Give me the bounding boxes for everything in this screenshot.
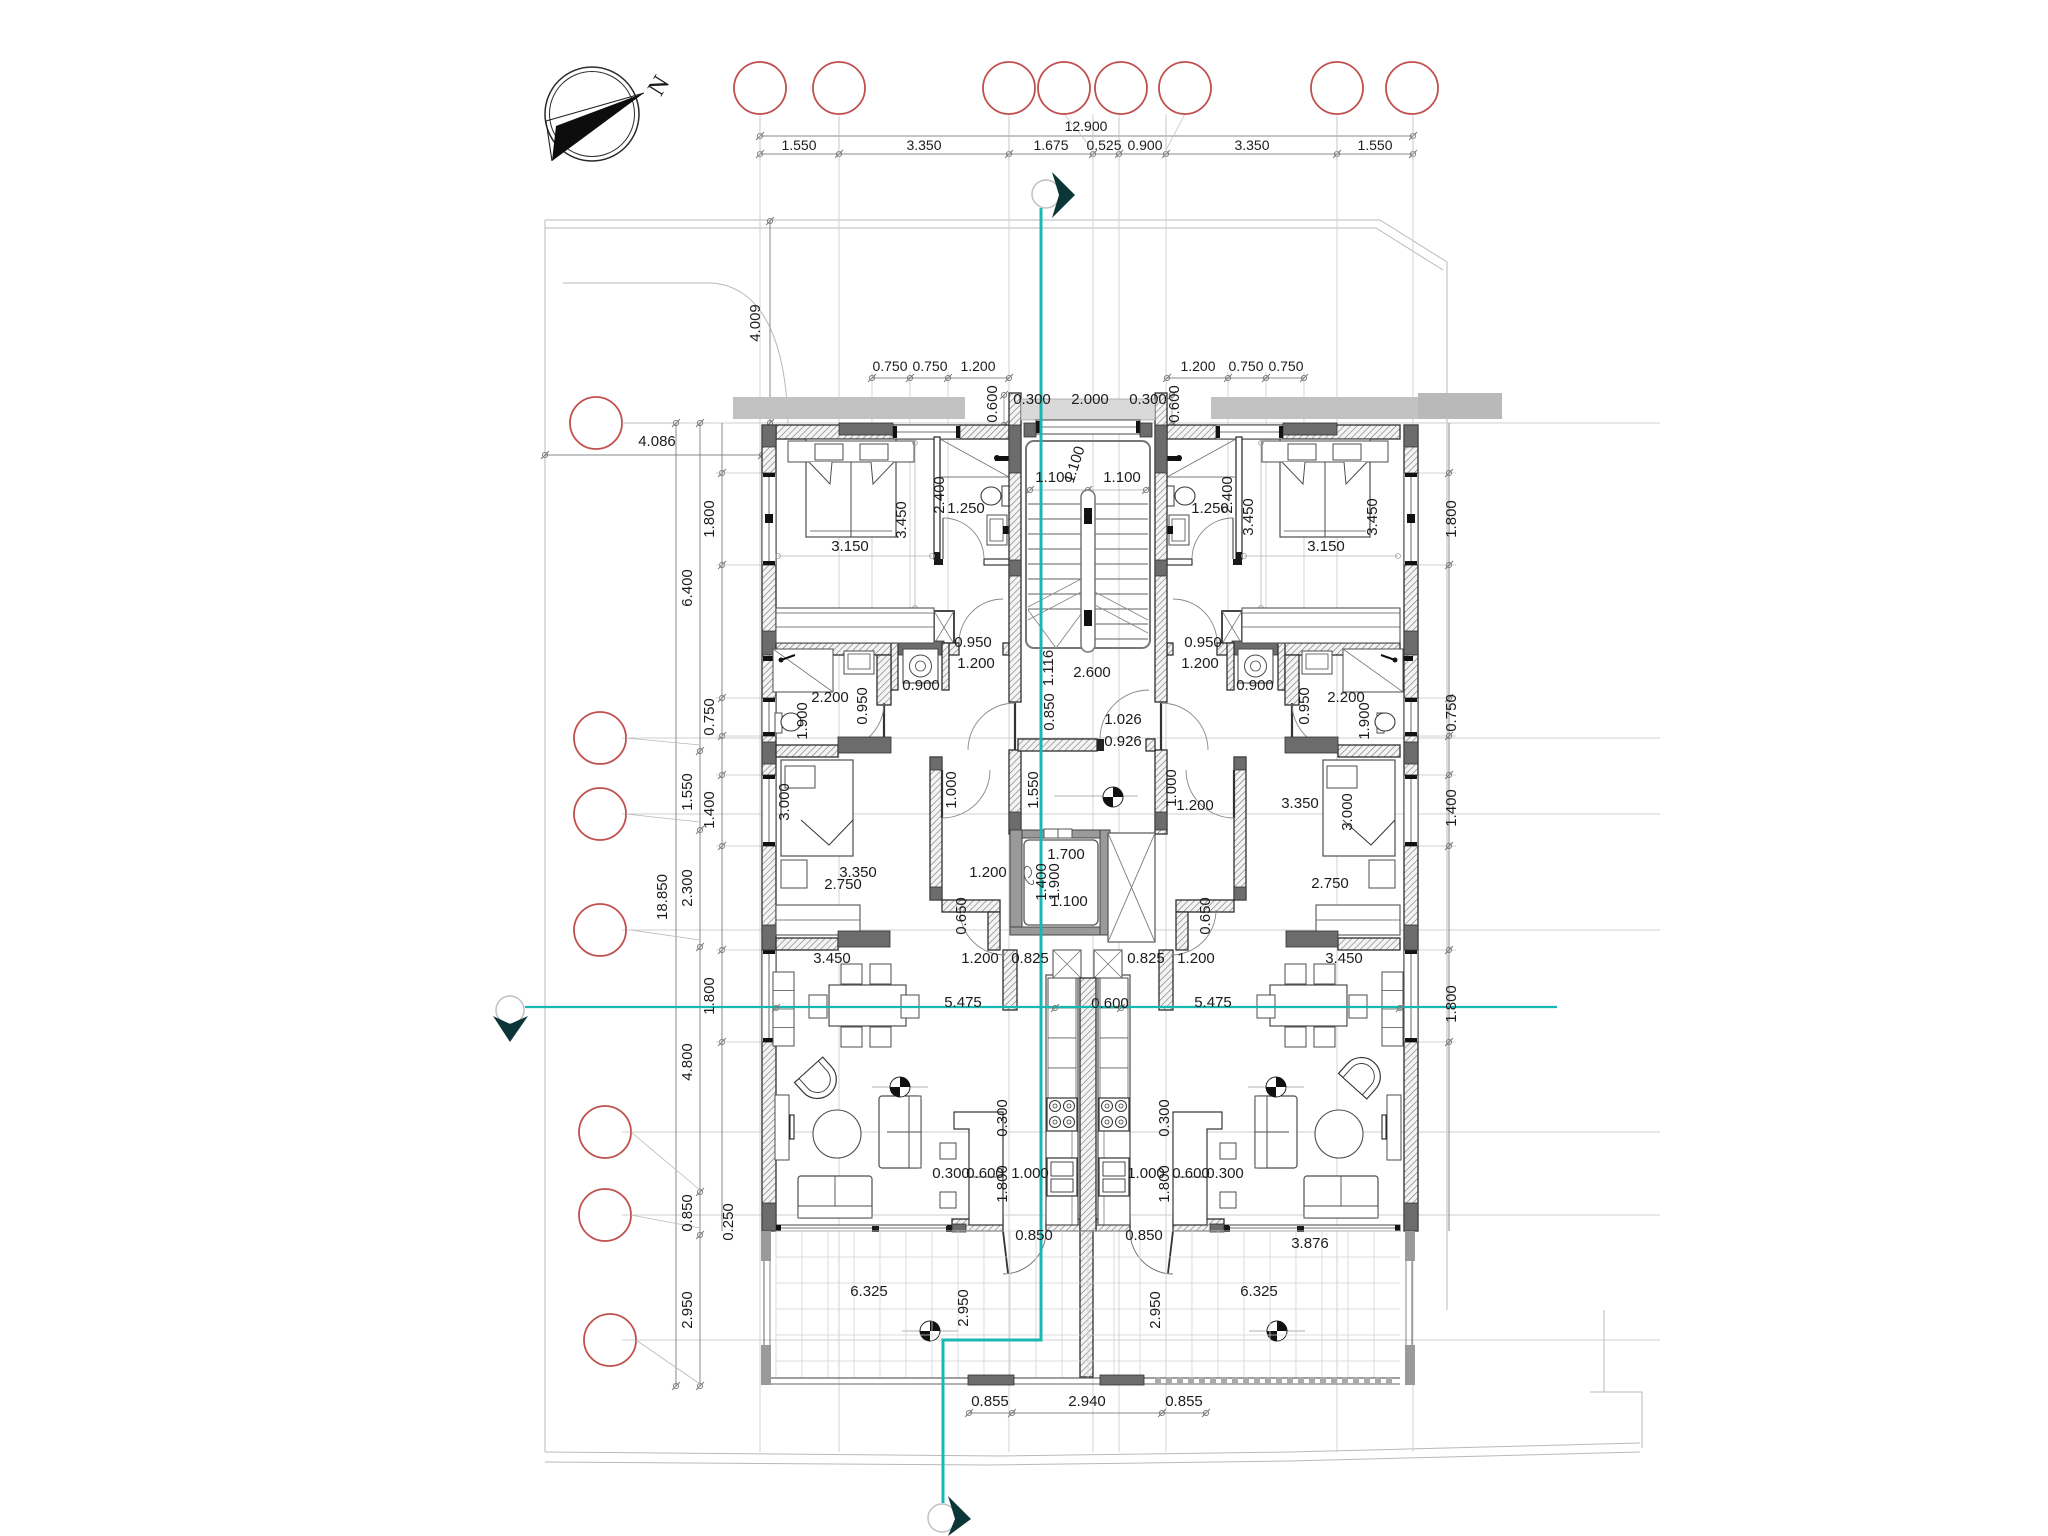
svg-text:1.250: 1.250 — [947, 500, 985, 517]
svg-text:0.900: 0.900 — [1236, 677, 1274, 694]
svg-text:0.950: 0.950 — [954, 634, 992, 651]
svg-text:5.475: 5.475 — [1194, 994, 1232, 1011]
svg-text:3.350: 3.350 — [1234, 137, 1269, 153]
svg-text:3.450: 3.450 — [1364, 498, 1381, 536]
svg-text:0.950: 0.950 — [1184, 634, 1222, 651]
svg-text:1.116: 1.116 — [1040, 650, 1057, 686]
svg-text:2.950: 2.950 — [679, 1291, 696, 1329]
svg-text:2.750: 2.750 — [1311, 875, 1349, 892]
svg-text:0.250: 0.250 — [720, 1203, 737, 1241]
svg-text:5.475: 5.475 — [944, 994, 982, 1011]
svg-text:2.950: 2.950 — [1147, 1291, 1164, 1329]
svg-text:4.009: 4.009 — [747, 304, 764, 342]
svg-text:6.325: 6.325 — [850, 1283, 888, 1300]
svg-text:0.300: 0.300 — [1206, 1165, 1244, 1182]
svg-text:3.350: 3.350 — [1281, 795, 1319, 812]
svg-text:1.200: 1.200 — [1177, 950, 1215, 967]
svg-text:0.855: 0.855 — [971, 1393, 1009, 1410]
svg-text:0.300: 0.300 — [1129, 391, 1167, 408]
svg-text:0.825: 0.825 — [1127, 950, 1165, 967]
svg-text:1.100: 1.100 — [1103, 469, 1141, 486]
svg-text:3.000: 3.000 — [1339, 793, 1356, 831]
svg-text:0.926: 0.926 — [1104, 733, 1142, 750]
svg-text:3.150: 3.150 — [1307, 538, 1345, 555]
svg-text:0.525: 0.525 — [1086, 137, 1121, 153]
svg-text:1.400: 1.400 — [701, 791, 718, 829]
svg-text:0.850: 0.850 — [1015, 1227, 1053, 1244]
svg-text:0.855: 0.855 — [1165, 1393, 1203, 1410]
svg-text:1.100: 1.100 — [1050, 893, 1088, 910]
svg-text:1.200: 1.200 — [969, 864, 1007, 881]
svg-text:6.325: 6.325 — [1240, 1283, 1278, 1300]
svg-text:1.550: 1.550 — [1025, 771, 1042, 809]
svg-text:1.800: 1.800 — [1443, 985, 1460, 1023]
svg-text:0.300: 0.300 — [1156, 1099, 1173, 1137]
svg-text:2.940: 2.940 — [1068, 1393, 1106, 1410]
svg-text:2.200: 2.200 — [811, 689, 849, 706]
svg-text:1.200: 1.200 — [957, 655, 995, 672]
svg-text:4.086: 4.086 — [638, 433, 676, 450]
svg-text:18.850: 18.850 — [654, 874, 671, 920]
svg-text:6.400: 6.400 — [679, 569, 696, 607]
svg-text:0.750: 0.750 — [1443, 694, 1460, 732]
svg-text:2.000: 2.000 — [1071, 391, 1109, 408]
svg-text:1.026: 1.026 — [1104, 711, 1142, 728]
svg-text:0.300: 0.300 — [1013, 391, 1051, 408]
svg-text:2.400: 2.400 — [931, 476, 948, 514]
svg-text:1.800: 1.800 — [701, 500, 718, 538]
svg-text:0.900: 0.900 — [902, 677, 940, 694]
svg-text:1.000: 1.000 — [1011, 1165, 1049, 1182]
svg-text:0.750: 0.750 — [1268, 358, 1303, 374]
svg-text:0.600: 0.600 — [1166, 385, 1183, 423]
svg-text:1.675: 1.675 — [1033, 137, 1068, 153]
svg-text:0.950: 0.950 — [854, 687, 871, 725]
svg-text:0.600: 0.600 — [984, 385, 1001, 423]
svg-text:1.250: 1.250 — [1191, 500, 1229, 517]
svg-text:1.200: 1.200 — [1181, 655, 1219, 672]
svg-text:1.000: 1.000 — [943, 771, 960, 809]
svg-text:3.350: 3.350 — [906, 137, 941, 153]
svg-text:0.300: 0.300 — [994, 1099, 1011, 1137]
svg-text:1.200: 1.200 — [1176, 797, 1214, 814]
svg-text:0.950: 0.950 — [1296, 687, 1313, 725]
svg-text:1.900: 1.900 — [1356, 702, 1373, 740]
svg-text:2.300: 2.300 — [679, 869, 696, 907]
svg-text:3.876: 3.876 — [1291, 1235, 1329, 1252]
svg-text:1.900: 1.900 — [794, 702, 811, 740]
svg-text:1.200: 1.200 — [960, 358, 995, 374]
svg-text:0.850: 0.850 — [679, 1194, 696, 1232]
svg-text:0.600: 0.600 — [1091, 995, 1129, 1012]
svg-text:3.450: 3.450 — [893, 501, 910, 539]
svg-text:3.000: 3.000 — [776, 783, 793, 821]
svg-text:3.450: 3.450 — [1240, 498, 1257, 536]
svg-text:0.850: 0.850 — [1041, 693, 1058, 731]
svg-text:4.800: 4.800 — [679, 1043, 696, 1081]
svg-text:0.900: 0.900 — [1127, 137, 1162, 153]
svg-text:2.950: 2.950 — [955, 1289, 972, 1327]
svg-text:3.450: 3.450 — [1325, 950, 1363, 967]
svg-text:1.800: 1.800 — [1443, 500, 1460, 538]
svg-text:0.300: 0.300 — [932, 1165, 970, 1182]
svg-text:1.700: 1.700 — [1047, 846, 1085, 863]
svg-text:0.650: 0.650 — [953, 897, 970, 935]
svg-text:1.550: 1.550 — [1357, 137, 1392, 153]
svg-text:0.750: 0.750 — [701, 698, 718, 736]
svg-text:0.750: 0.750 — [872, 358, 907, 374]
svg-text:2.750: 2.750 — [824, 876, 862, 893]
svg-text:0.650: 0.650 — [1197, 897, 1214, 935]
svg-text:1.800: 1.800 — [1156, 1165, 1173, 1203]
svg-text:1.550: 1.550 — [781, 137, 816, 153]
svg-text:0.850: 0.850 — [1125, 1227, 1163, 1244]
svg-text:0.600: 0.600 — [1172, 1165, 1210, 1182]
svg-text:1.200: 1.200 — [1180, 358, 1215, 374]
svg-text:3.150: 3.150 — [831, 538, 869, 555]
svg-text:1.800: 1.800 — [994, 1165, 1011, 1203]
svg-text:1.400: 1.400 — [1443, 789, 1460, 827]
svg-text:0.825: 0.825 — [1011, 950, 1049, 967]
svg-text:1.550: 1.550 — [679, 773, 696, 811]
svg-text:0.750: 0.750 — [1228, 358, 1263, 374]
svg-text:1.200: 1.200 — [961, 950, 999, 967]
svg-text:3.450: 3.450 — [813, 950, 851, 967]
svg-text:12.900: 12.900 — [1065, 118, 1108, 134]
svg-text:2.600: 2.600 — [1073, 664, 1111, 681]
svg-text:0.750: 0.750 — [912, 358, 947, 374]
svg-text:1.800: 1.800 — [701, 977, 718, 1015]
